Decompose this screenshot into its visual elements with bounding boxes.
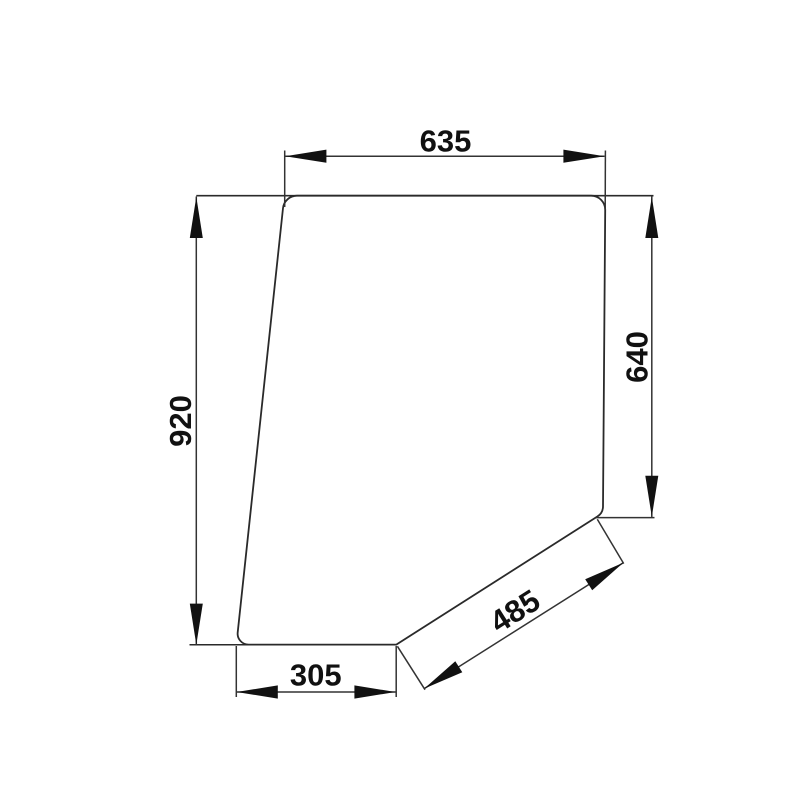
svg-text:640: 640 xyxy=(620,331,655,383)
svg-text:635: 635 xyxy=(420,123,472,158)
svg-text:485: 485 xyxy=(484,583,546,640)
svg-text:305: 305 xyxy=(290,658,342,693)
svg-text:920: 920 xyxy=(163,395,198,447)
